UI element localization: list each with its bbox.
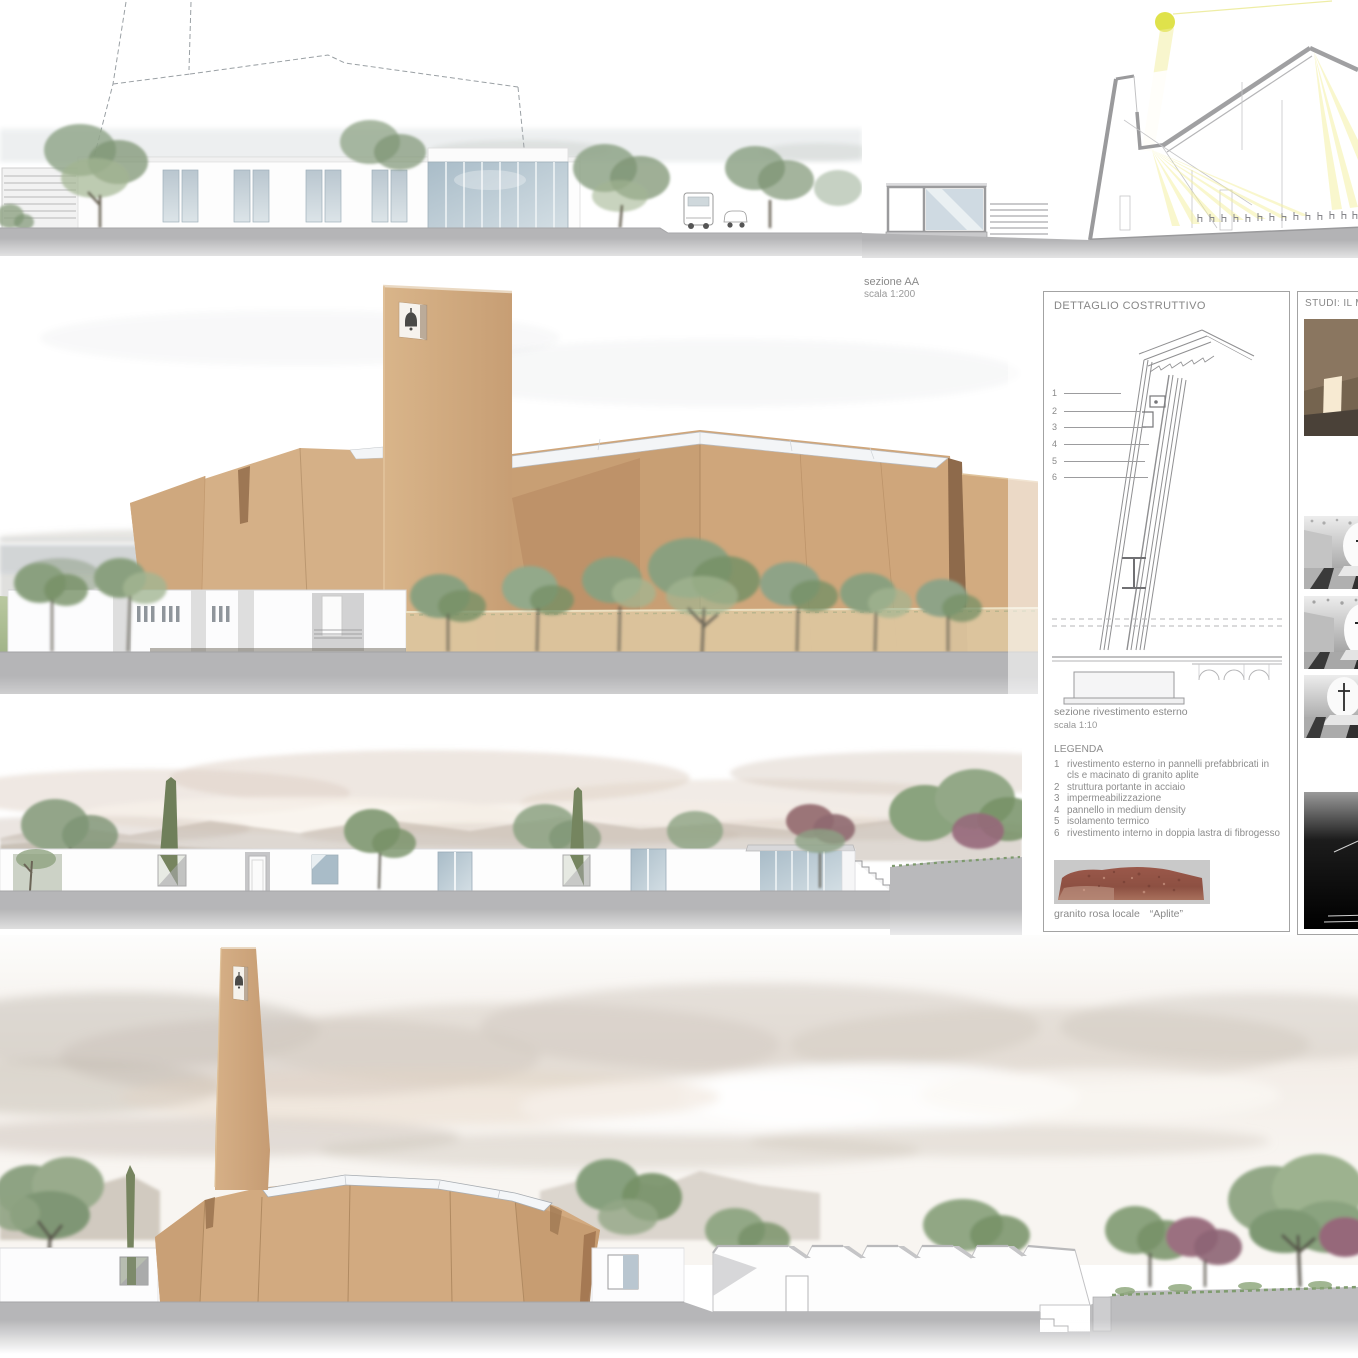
skylight-sliver bbox=[350, 447, 383, 459]
tree bbox=[667, 811, 723, 851]
section-aa-drawing bbox=[862, 0, 1358, 268]
legend-item-text: impermeabilizzazione bbox=[1067, 793, 1282, 805]
callout-number: 2 bbox=[1052, 406, 1062, 416]
detail-callout-6: 6 bbox=[1052, 472, 1148, 482]
leader-line bbox=[1064, 461, 1145, 462]
legend: LEGENDA 1 rivestimento esterno in pannel… bbox=[1054, 744, 1282, 839]
legend-item: 2 struttura portante in acciaio bbox=[1054, 782, 1282, 794]
legend-item-text: pannello in medium density bbox=[1067, 805, 1282, 817]
front-elevation-render bbox=[0, 935, 1358, 1358]
studies-panel: STUDI: IL MO bbox=[1297, 291, 1358, 935]
detail-panel-title: DETTAGLIO COSTRUTTIVO bbox=[1054, 300, 1206, 312]
elevation-aa-drawing bbox=[0, 0, 862, 268]
clouds bbox=[0, 983, 1358, 1169]
detail-callout-2: 2 bbox=[1052, 406, 1140, 416]
glass-hall bbox=[428, 148, 568, 228]
legend-item-number: 2 bbox=[1054, 782, 1067, 794]
detail-callout-3: 3 bbox=[1052, 422, 1146, 432]
callout-number: 3 bbox=[1052, 422, 1062, 432]
facade-slot bbox=[238, 466, 250, 524]
granite-caption: granito rosa locale “Aplite” bbox=[1054, 908, 1183, 920]
granite-caption-name: granito rosa locale bbox=[1054, 908, 1140, 920]
study-model-photo-warm bbox=[1304, 319, 1358, 436]
detail-callout-4: 4 bbox=[1052, 439, 1149, 449]
ground bbox=[0, 228, 862, 268]
louver-strip bbox=[990, 204, 1048, 234]
detail-callout-1: 1 bbox=[1052, 388, 1121, 398]
callout-number: 6 bbox=[1052, 472, 1062, 482]
construction-detail-drawing bbox=[1044, 320, 1289, 705]
study-interior-photo-3 bbox=[1304, 675, 1358, 738]
purple-tree bbox=[952, 813, 1004, 849]
granite-caption-quote: “Aplite” bbox=[1150, 908, 1183, 920]
side-elevation-render bbox=[0, 733, 1022, 945]
sun-icon bbox=[1155, 1, 1332, 32]
callout-number: 1 bbox=[1052, 388, 1062, 398]
legend-title: LEGENDA bbox=[1054, 744, 1282, 756]
church-section bbox=[1090, 48, 1358, 240]
callout-number: 4 bbox=[1052, 439, 1062, 449]
detail-callout-5: 5 bbox=[1052, 456, 1145, 466]
detail-caption: sezione rivestimento esterno bbox=[1054, 706, 1188, 718]
study-interior-photo-1 bbox=[1304, 516, 1358, 589]
leader-line bbox=[1064, 393, 1121, 394]
legend-item-text: isolamento termico bbox=[1067, 816, 1282, 828]
roof-detail bbox=[1139, 330, 1254, 372]
detail-scale: scala 1:10 bbox=[1054, 720, 1097, 731]
edge-fade bbox=[1008, 278, 1038, 730]
door bbox=[786, 1276, 808, 1312]
sky bbox=[40, 310, 1020, 407]
legend-item-number: 6 bbox=[1054, 828, 1067, 840]
study-model-photo-dark bbox=[1304, 792, 1358, 929]
tree bbox=[814, 170, 862, 206]
construction-detail-panel: DETTAGLIO COSTRUTTIVO bbox=[1043, 291, 1290, 932]
break-lines bbox=[1052, 619, 1282, 626]
canopy-wing bbox=[746, 845, 855, 891]
leader-line bbox=[1064, 411, 1140, 412]
right-wall bbox=[592, 1248, 684, 1302]
leader-line bbox=[1064, 427, 1146, 428]
legend-item-number: 1 bbox=[1054, 759, 1067, 782]
legend-item: 3 impermeabilizzazione bbox=[1054, 793, 1282, 805]
callout-number: 5 bbox=[1052, 456, 1062, 466]
truck-icon bbox=[684, 193, 713, 229]
glazed-window bbox=[631, 849, 666, 891]
wall-opening bbox=[13, 849, 62, 891]
window bbox=[608, 1255, 638, 1289]
study-interior-photo-2 bbox=[1304, 596, 1358, 669]
wall-layers bbox=[1100, 360, 1186, 650]
legend-item: 6 rivestimento interno in doppia lastra … bbox=[1054, 828, 1282, 840]
glazed-window bbox=[438, 852, 472, 891]
floor-foundation bbox=[1052, 657, 1282, 704]
main-perspective-render bbox=[0, 278, 1038, 730]
small-building-section bbox=[886, 183, 987, 239]
window bbox=[120, 1257, 148, 1285]
ground bbox=[0, 652, 1038, 730]
leader-line bbox=[1064, 477, 1148, 478]
window bbox=[312, 855, 338, 884]
legend-item: 5 isolamento termico bbox=[1054, 816, 1282, 828]
balcony bbox=[312, 593, 364, 651]
legend-item-number: 5 bbox=[1054, 816, 1067, 828]
leader-line bbox=[1064, 444, 1149, 445]
legend-item-text: struttura portante in acciaio bbox=[1067, 782, 1282, 794]
legend-item-text: rivestimento esterno in pannelli prefabb… bbox=[1067, 759, 1282, 782]
legend-item-number: 3 bbox=[1054, 793, 1067, 805]
legend-item: 1 rivestimento esterno in pannelli prefa… bbox=[1054, 759, 1282, 782]
door bbox=[245, 852, 270, 893]
studies-panel-title: STUDI: IL MO bbox=[1305, 298, 1358, 309]
legend-item: 4 pannello in medium density bbox=[1054, 805, 1282, 817]
granite-sample-photo bbox=[1054, 860, 1210, 904]
presentation-board: sezione AA scala 1:200 bbox=[0, 0, 1358, 1358]
legend-item-text: rivestimento interno in doppia lastra di… bbox=[1067, 828, 1282, 840]
left-wall bbox=[0, 1248, 158, 1302]
car-icon bbox=[724, 211, 747, 228]
stairs bbox=[855, 861, 890, 891]
legend-item-number: 4 bbox=[1054, 805, 1067, 817]
